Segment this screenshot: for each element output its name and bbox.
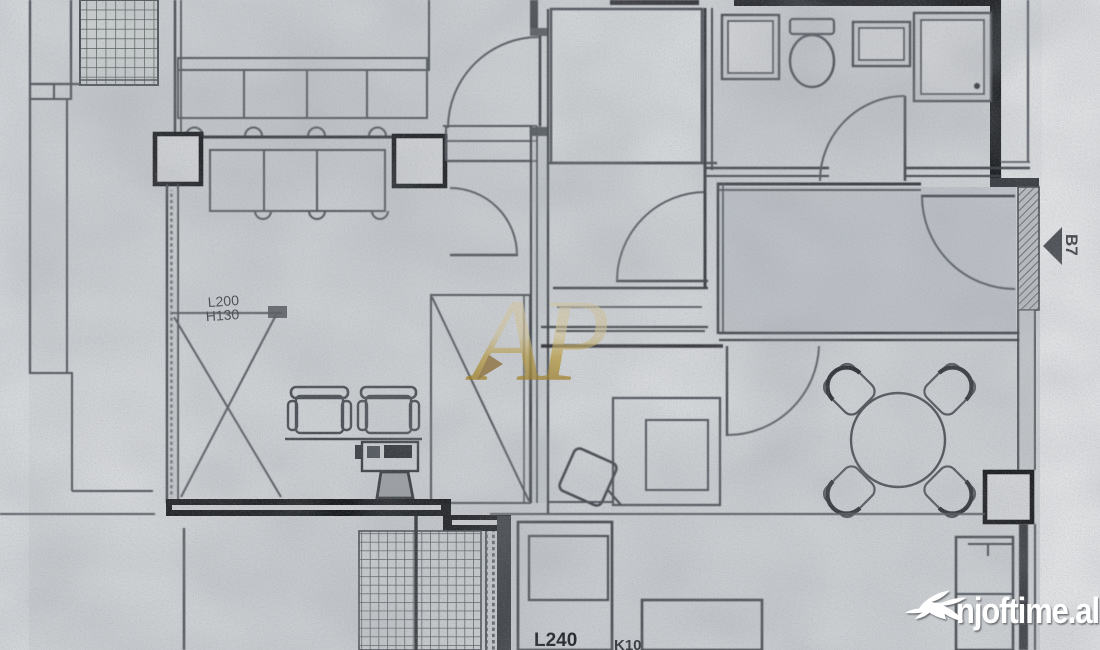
svg-text:njoftime.al: njoftime.al: [956, 590, 1099, 631]
